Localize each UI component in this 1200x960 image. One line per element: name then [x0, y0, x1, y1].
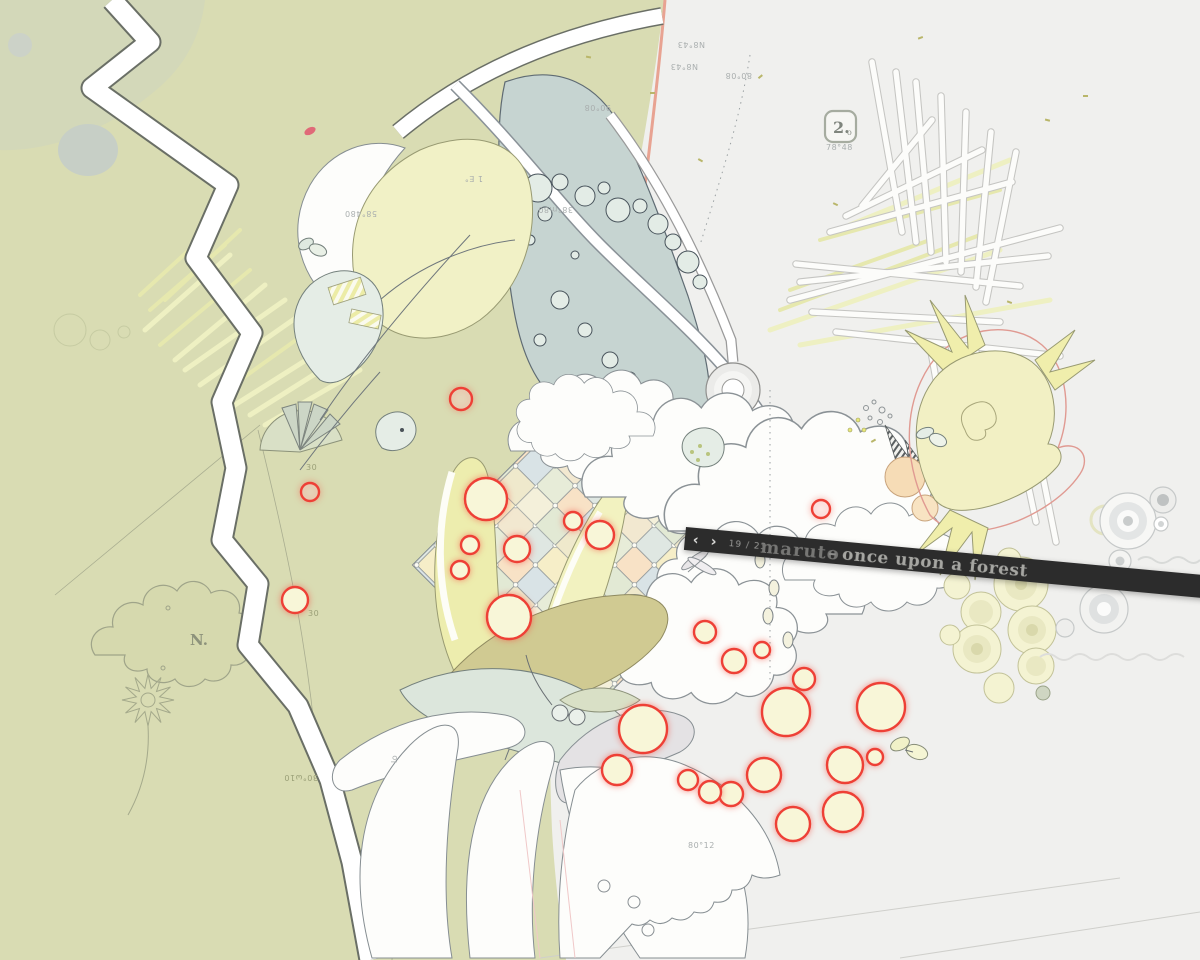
compass-label: N.	[190, 631, 208, 649]
coord-label: 38°m80	[538, 205, 573, 214]
coord-label: 30	[306, 463, 317, 472]
badge-coords: 78°48	[826, 143, 853, 152]
marker-badge: 2. o 78°48	[825, 111, 856, 152]
coord-label: 30	[308, 609, 319, 618]
coord-label: lo	[390, 755, 399, 763]
coord-label: N8°43	[670, 62, 698, 71]
coord-label: 80°12	[688, 841, 715, 850]
coord-label: 90°08	[584, 103, 611, 112]
badge-sub: o	[847, 128, 852, 137]
coord-label: 30°ω10	[284, 773, 318, 782]
coord-label: 58°480	[345, 209, 377, 218]
artwork-canvas: N.	[0, 0, 1200, 960]
coord-label: N8°43	[677, 40, 705, 49]
forest-illustration: N.	[0, 0, 1200, 960]
gray-dot-blob	[8, 33, 32, 57]
coord-label: 80°08	[725, 71, 752, 80]
gray-blob	[58, 124, 118, 176]
coord-label: 1 E°	[464, 174, 483, 183]
